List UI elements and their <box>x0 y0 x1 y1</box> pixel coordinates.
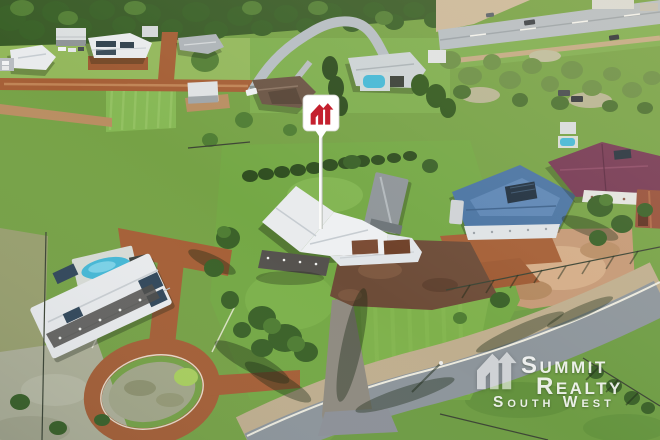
aerial-scene <box>0 0 660 440</box>
light-overlay <box>0 0 660 440</box>
aerial-photo: Summit Realty South West <box>0 0 660 440</box>
